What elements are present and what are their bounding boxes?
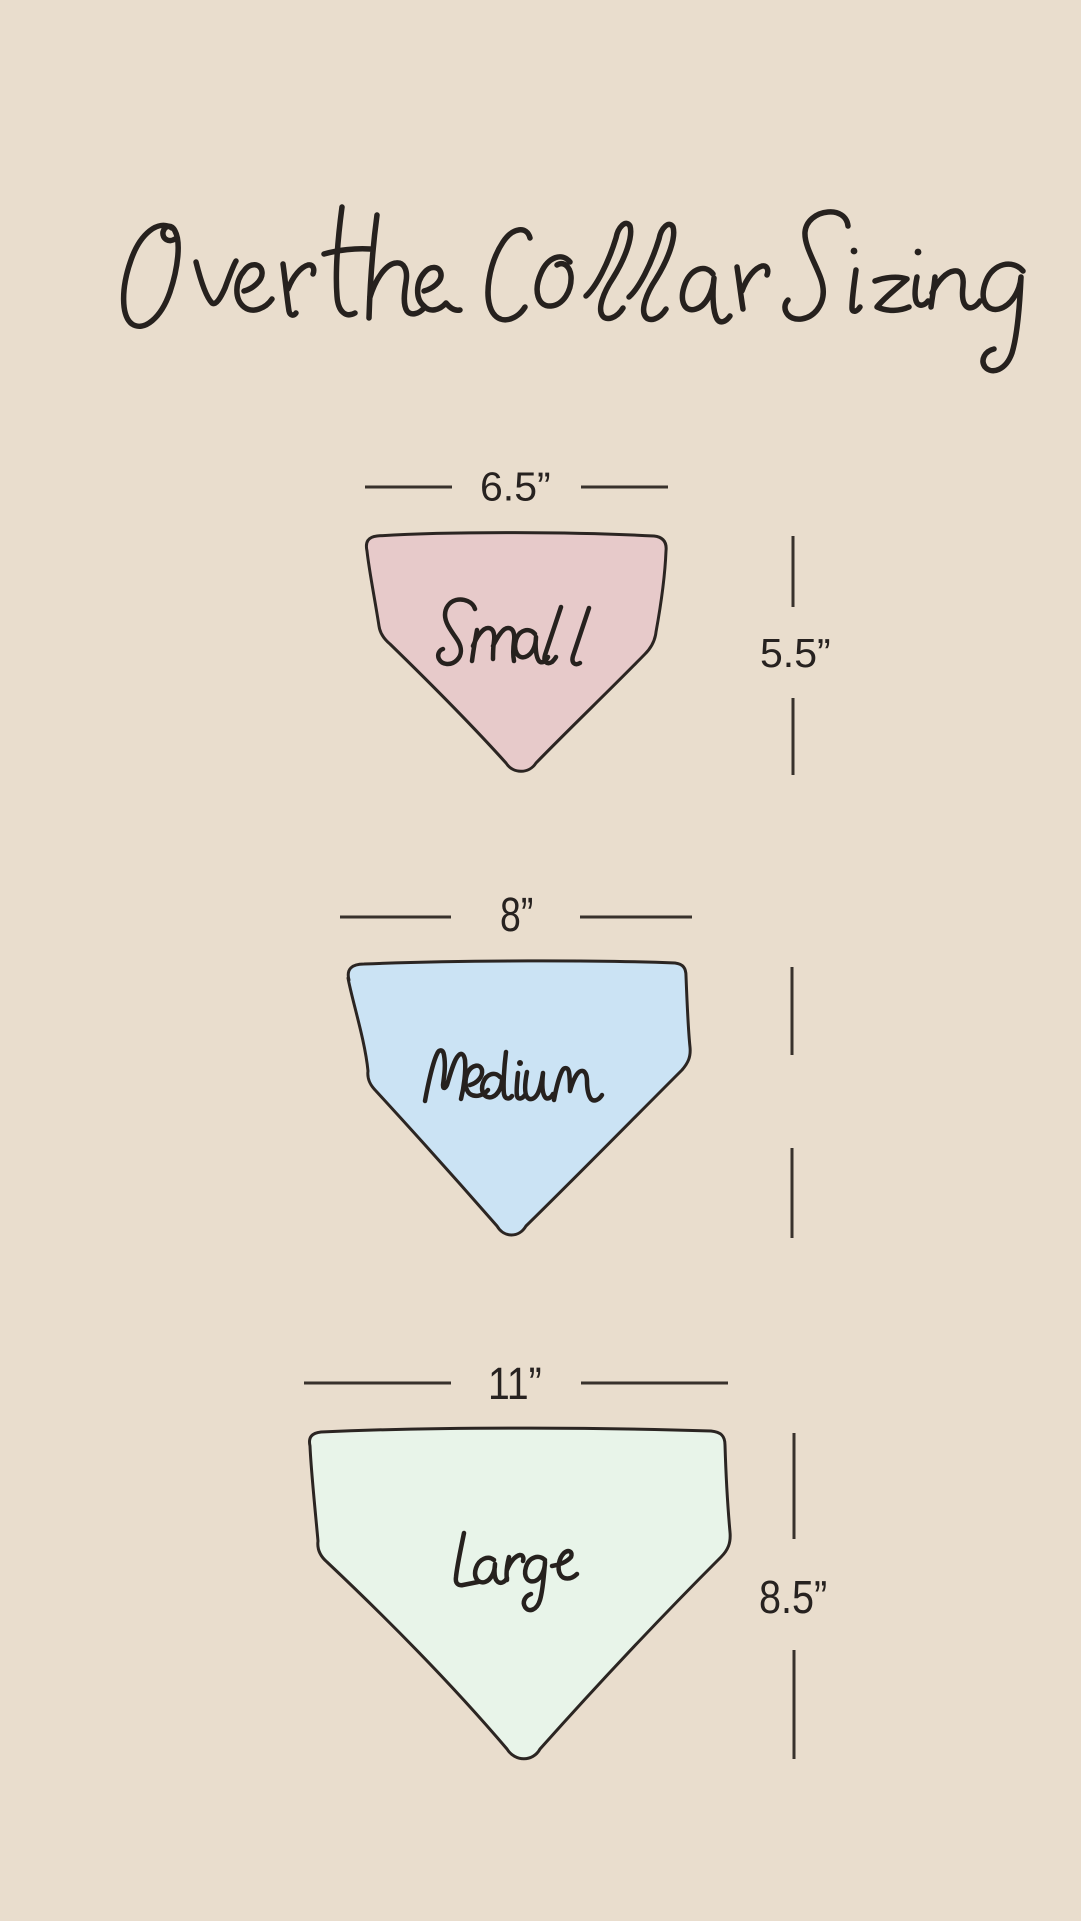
svg-text:11”: 11” — [488, 1358, 542, 1408]
svg-text:6.5”: 6.5” — [480, 464, 551, 510]
svg-text:8.5”: 8.5” — [759, 1572, 827, 1623]
svg-text:5.5”: 5.5” — [760, 630, 831, 676]
svg-text:8”: 8” — [500, 889, 533, 943]
